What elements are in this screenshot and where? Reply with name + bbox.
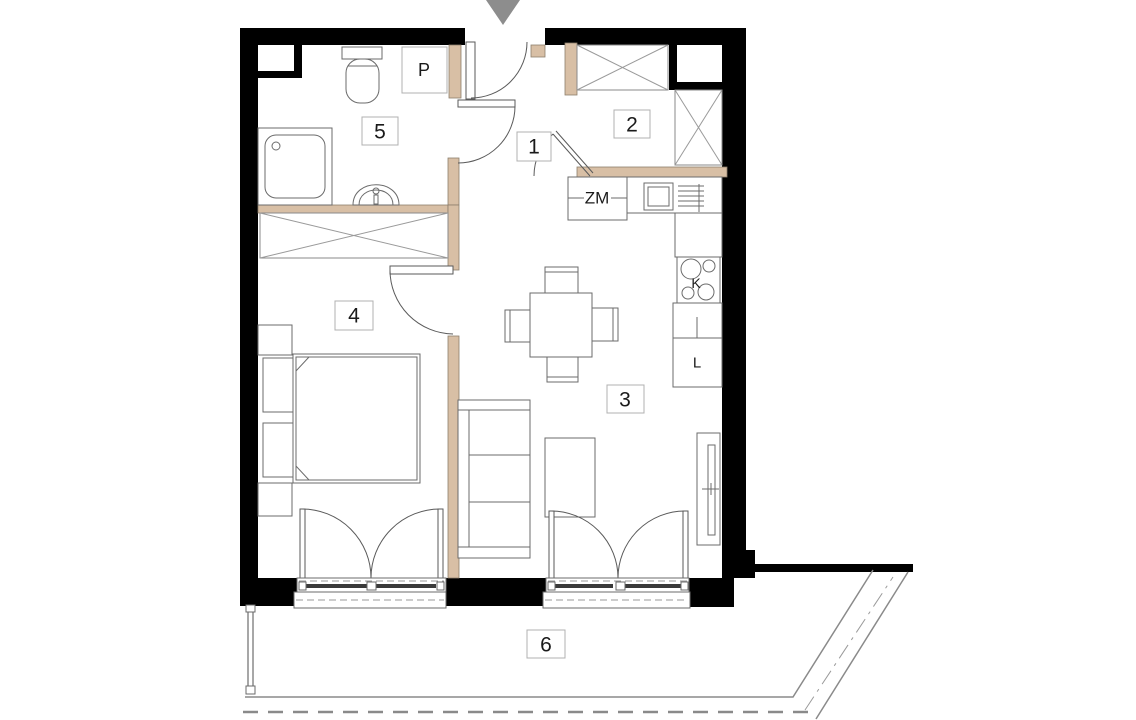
bedroom-door — [390, 266, 453, 334]
wall-top-right — [545, 28, 746, 45]
room-label-2: 2 — [614, 110, 650, 138]
pillow-bottom — [263, 423, 295, 477]
living-furniture — [458, 400, 720, 558]
terrace-railing-post — [246, 605, 255, 694]
room-label-3: 3 — [607, 385, 644, 413]
washing-machine: P — [402, 47, 447, 93]
wardrobe-bedroom — [260, 213, 448, 258]
sofa — [458, 400, 530, 558]
svg-text:1: 1 — [528, 136, 540, 159]
nightstand-top — [258, 325, 292, 355]
wardrobe-hall-top — [577, 45, 668, 90]
wall-neighbor-band — [755, 564, 913, 572]
wall-right — [722, 28, 746, 550]
shower — [258, 128, 332, 205]
svg-text:6: 6 — [540, 634, 552, 657]
kitchen-counter — [675, 213, 722, 257]
kitchen-sink — [627, 177, 722, 213]
bathroom: P — [258, 47, 447, 205]
washing-machine-label: P — [418, 60, 430, 80]
fridge-label: L — [693, 355, 701, 372]
terrace-boundary-axis — [805, 577, 893, 710]
cooktop: K — [677, 257, 720, 303]
dishwasher-label: ZM — [585, 189, 610, 208]
wall-bottom-left-pier — [240, 578, 298, 606]
armchair — [545, 438, 595, 517]
entry-arrow-icon — [486, 0, 520, 25]
fridge: L — [673, 338, 722, 387]
room-label-6: 6 — [527, 630, 565, 658]
room-label-4: 4 — [335, 301, 373, 330]
room-label-1: 1 — [517, 132, 551, 161]
jamb-entry-left — [449, 45, 461, 98]
wall-bottom-middle-pier — [445, 578, 548, 606]
wall-left — [240, 28, 258, 578]
wall-shaft-left-bottom — [258, 71, 302, 78]
dining-set — [505, 267, 618, 382]
cooktop-label: K — [691, 275, 701, 291]
wall-bottom-right-pier — [688, 578, 734, 607]
terrace-edge-outer — [816, 572, 908, 719]
jamb-entry-right — [531, 45, 545, 57]
wardrobe-hall-right — [675, 90, 722, 165]
jamb-room2-left — [565, 43, 577, 95]
room-label-5: 5 — [362, 117, 398, 145]
wall-kitchen-north — [577, 167, 727, 177]
radiator — [697, 433, 720, 545]
bedroom-furniture — [258, 325, 420, 516]
svg-text:4: 4 — [348, 305, 360, 328]
wall-bath-south — [258, 205, 448, 213]
pillow-top — [263, 358, 295, 412]
wall-partition-lower — [448, 336, 459, 578]
wall-shaft-right-bottom — [669, 82, 746, 90]
bedroom-window — [294, 509, 446, 608]
floor-plan-drawing: P ZM K — [0, 0, 1136, 720]
kitchen-drawers — [673, 303, 722, 338]
washbasin — [353, 185, 399, 205]
dining-table — [530, 293, 592, 357]
toilet — [342, 47, 382, 103]
svg-text:3: 3 — [619, 389, 631, 412]
dishwasher: ZM — [568, 177, 627, 220]
wall-right-step — [722, 550, 755, 578]
bed — [293, 354, 420, 483]
bathroom-door — [458, 100, 515, 163]
wall-bath-east — [448, 158, 459, 205]
entrance-door — [466, 42, 527, 99]
floor-plan-page: P ZM K — [0, 0, 1136, 720]
wall-partition-upper — [448, 205, 459, 270]
svg-text:5: 5 — [374, 121, 386, 144]
nightstand-bottom — [258, 483, 292, 516]
living-window — [543, 511, 690, 608]
wall-top-left — [240, 28, 465, 45]
svg-text:2: 2 — [626, 114, 638, 137]
